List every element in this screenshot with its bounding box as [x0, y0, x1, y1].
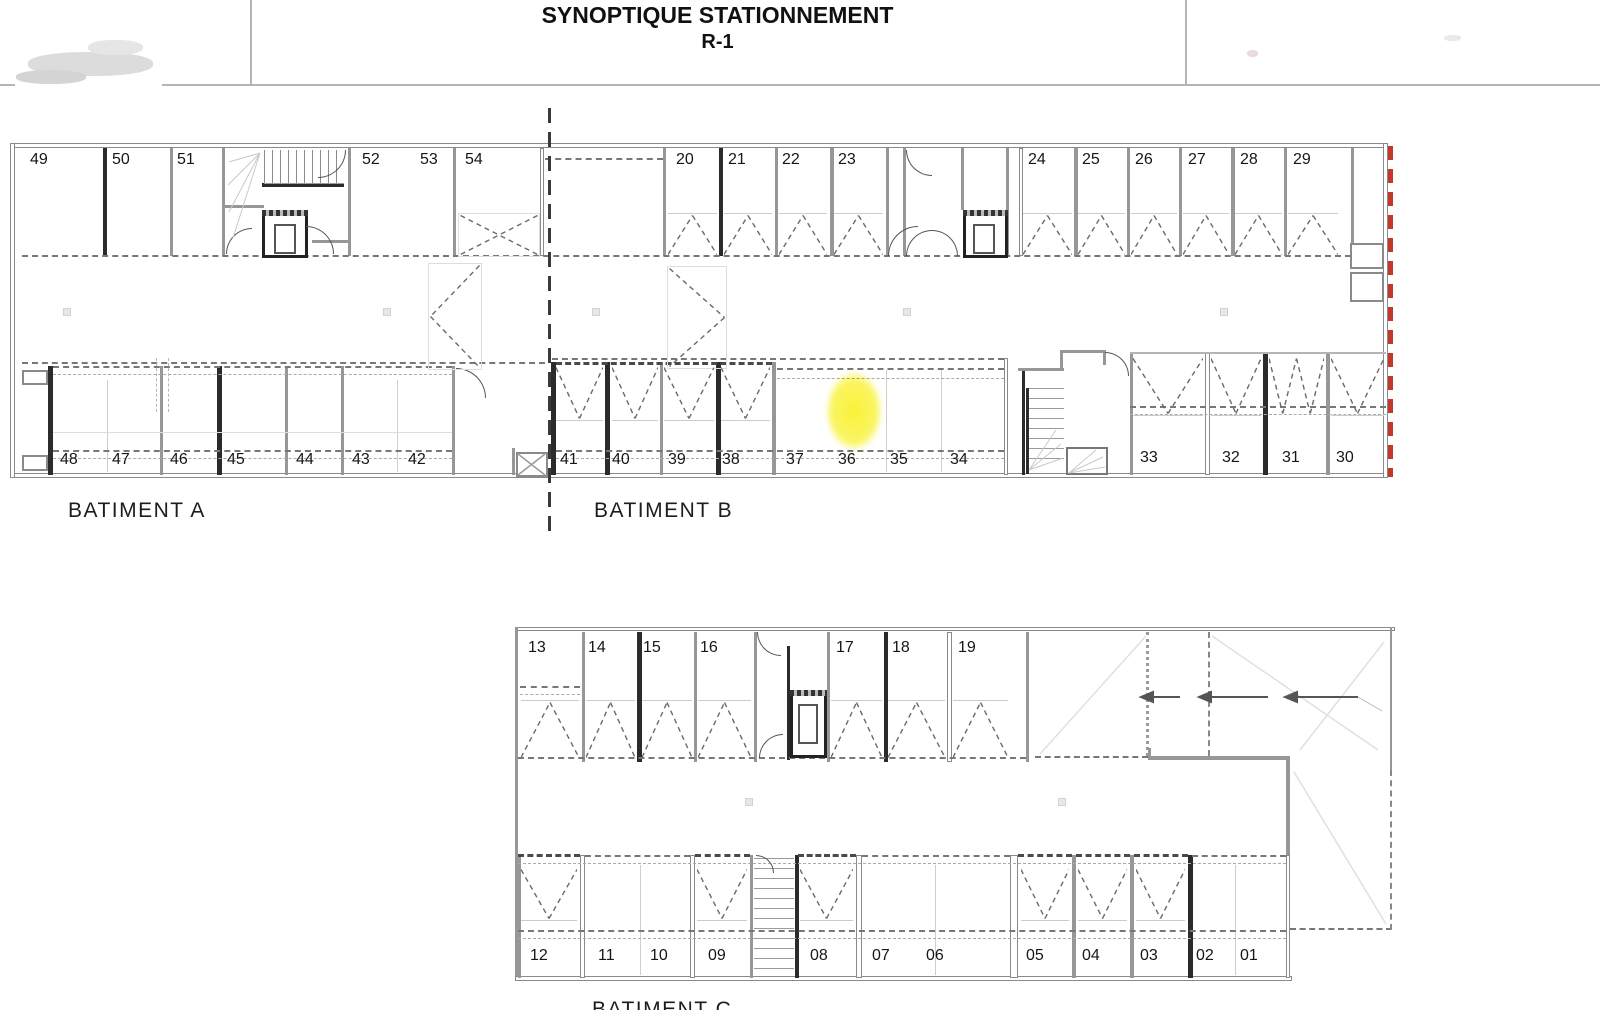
dashed-line: [1035, 756, 1148, 758]
wall: [775, 148, 778, 256]
parking-marking-chevron: [1235, 213, 1282, 256]
plan-geometry: 4950515253542021222324252627282948474645…: [0, 0, 1600, 1010]
parking-space-number: 33: [1140, 450, 1158, 466]
parking-marking-chevron: [521, 868, 577, 921]
parking-space-number: 35: [890, 452, 908, 468]
wall-niche-box: [1350, 243, 1384, 269]
dashed-line: [518, 930, 1286, 932]
wall: [1351, 148, 1354, 256]
parking-space-number: 36: [838, 452, 856, 468]
wall: [694, 632, 697, 762]
parking-space-number: 46: [170, 452, 188, 468]
parking-space-number: 08: [810, 948, 828, 964]
parking-space-number: 05: [1026, 948, 1044, 964]
wall: [1284, 148, 1287, 256]
parking-marking-chevron: [664, 366, 714, 421]
wall: [941, 370, 942, 472]
elevator-door-hatch: [963, 210, 1008, 216]
duct-shaft-box: [516, 452, 548, 477]
parking-space-number: 20: [676, 152, 694, 168]
parking-space-number: 28: [1240, 152, 1258, 168]
parking-marking-chevron: [1288, 213, 1338, 256]
wall: [1060, 350, 1063, 371]
parking-marking-chevron: [1078, 213, 1125, 256]
dashed-line: [1134, 854, 1188, 857]
wall: [1130, 855, 1134, 978]
door-swing-arc: [1105, 352, 1129, 376]
parking-marking-chevron: [1183, 213, 1229, 256]
parking-space-number: 50: [112, 152, 130, 168]
wall-niche-box: [22, 370, 48, 385]
wall: [453, 148, 456, 256]
wall: [1127, 148, 1130, 256]
dashed-line: [520, 694, 580, 695]
parking-space-number: 40: [612, 452, 630, 468]
wall: [10, 143, 15, 478]
wall: [1022, 368, 1025, 475]
parking-space-number: 51: [177, 152, 195, 168]
parking-space-number: 07: [872, 948, 890, 964]
door-swing-arc: [757, 632, 781, 656]
wall: [224, 205, 264, 208]
wall-niche-box: [1350, 272, 1384, 302]
wall: [856, 855, 862, 978]
parking-space-number: 41: [560, 452, 578, 468]
parking-space-number: 43: [352, 452, 370, 468]
parking-space-number: 02: [1196, 948, 1214, 964]
wall: [1060, 350, 1106, 353]
column-marker: [592, 308, 600, 316]
parking-marking-chevron: [1331, 357, 1384, 416]
parking-space-number: 24: [1028, 152, 1046, 168]
wall: [690, 855, 695, 978]
wall: [1004, 358, 1008, 475]
dashed-line: [1076, 854, 1130, 857]
wall: [750, 855, 753, 978]
column-marker: [383, 308, 391, 316]
parking-marking-chevron: [642, 700, 692, 759]
parking-marking-chevron: [586, 700, 635, 759]
parking-marking-chevron: [800, 868, 853, 921]
parking-space-number: 49: [30, 152, 48, 168]
parking-space-number: 13: [528, 640, 546, 656]
highlighted-space-36: [826, 372, 882, 450]
dashed-line: [585, 855, 690, 857]
dashed-line: [53, 432, 452, 433]
parking-space-number: 04: [1082, 948, 1100, 964]
parking-space-number: 42: [408, 452, 426, 468]
dashed-line: [518, 938, 1286, 939]
parking-marking-chevron: [1023, 213, 1072, 256]
parking-space-number: 30: [1336, 450, 1354, 466]
wall: [1072, 855, 1076, 978]
parking-space-number: 22: [782, 152, 800, 168]
parking-space-number: 47: [112, 452, 130, 468]
parking-space-number: 25: [1082, 152, 1100, 168]
dashed-line: [518, 854, 580, 857]
elevator-door-hatch: [262, 210, 308, 216]
parking-space-number: 26: [1135, 152, 1153, 168]
dashed-line: [53, 374, 452, 375]
staircase-treads: [754, 858, 794, 976]
wall: [580, 855, 585, 978]
parking-space-number: 32: [1222, 450, 1240, 466]
dashed-line: [53, 366, 452, 368]
wall: [947, 632, 952, 762]
parking-marking-chevron: [612, 366, 658, 421]
parking-space-number: 54: [465, 152, 483, 168]
dashed-line: [520, 686, 580, 688]
parking-space-number: 19: [958, 640, 976, 656]
wall: [452, 366, 455, 475]
wall: [170, 148, 173, 256]
parking-space-number: 44: [296, 452, 314, 468]
dashed-line: [1146, 632, 1149, 756]
dashed-line: [695, 854, 750, 857]
dashed-line: [777, 378, 1004, 379]
dashed-line: [518, 863, 1286, 864]
door-swing-arc: [226, 228, 252, 254]
wall: [1286, 855, 1290, 978]
parking-space-number: 06: [926, 948, 944, 964]
elevator-car: [973, 224, 995, 254]
parking-marking-chevron: [521, 700, 579, 759]
wall: [795, 855, 799, 978]
parking-space-number: 03: [1140, 948, 1158, 964]
wall: [886, 370, 887, 472]
column-marker: [745, 798, 753, 806]
dashed-line: [1192, 855, 1286, 857]
dashed-line: [1208, 632, 1210, 756]
staircase-treads: [1029, 388, 1064, 462]
parking-space-number: 10: [650, 948, 668, 964]
wall: [512, 448, 515, 475]
dashed-line: [862, 855, 1010, 857]
door-swing-arc: [306, 226, 334, 254]
wall: [582, 632, 585, 762]
elevator-car: [798, 704, 818, 744]
door-swing-arc: [759, 734, 783, 758]
door-swing-arc: [456, 368, 486, 398]
parking-marking-chevron: [458, 213, 540, 257]
dashed-line: [552, 358, 1004, 360]
column-marker: [903, 308, 911, 316]
parking-space-number: 01: [1240, 948, 1258, 964]
parking-marking-chevron: [1269, 357, 1324, 415]
wall: [719, 148, 723, 256]
parking-marking-chevron: [953, 700, 1008, 759]
parking-space-number: 34: [950, 452, 968, 468]
parking-space-number: 29: [1293, 152, 1311, 168]
parking-marking-chevron: [779, 213, 827, 256]
parking-marking-chevron: [1021, 868, 1069, 921]
parking-marking-chevron: [668, 213, 717, 256]
parking-space-number: 39: [668, 452, 686, 468]
dashed-line: [556, 362, 772, 365]
wall: [1018, 368, 1064, 371]
parking-space-number: 38: [722, 452, 740, 468]
wall: [1286, 756, 1290, 857]
parking-marking-chevron: [1131, 213, 1177, 256]
parking-marking-chevron: [1211, 357, 1261, 416]
wall: [515, 976, 1292, 981]
dashed-line: [798, 854, 856, 857]
parking-space-number: 17: [836, 640, 854, 656]
stair-landing-box: [1066, 447, 1108, 475]
red-boundary-line: [1388, 146, 1393, 477]
floor-plan-page: SYNOPTIQUE STATIONNEMENT R-1 BATIMENT A …: [0, 0, 1600, 1010]
dashed-line: [1018, 854, 1072, 857]
dashed-line: [545, 158, 663, 160]
wall: [1235, 865, 1236, 975]
parking-marking-chevron: [724, 213, 772, 256]
wall: [827, 632, 830, 762]
parking-marking-chevron: [888, 700, 945, 759]
wall: [663, 148, 666, 256]
column-marker: [63, 308, 71, 316]
parking-marking-chevron: [1136, 868, 1185, 921]
parking-space-number: 23: [838, 152, 856, 168]
column-marker: [1058, 798, 1066, 806]
wall: [1010, 855, 1018, 978]
wall: [1390, 627, 1392, 770]
parking-space-number: 31: [1282, 450, 1300, 466]
parking-space-number: 16: [700, 640, 718, 656]
wall: [1026, 632, 1029, 762]
door-swing-arc: [932, 230, 958, 256]
parking-marking-chevron: [834, 213, 883, 256]
parking-space-number: 21: [728, 152, 746, 168]
wall: [1130, 352, 1386, 354]
wall: [754, 632, 757, 762]
parking-space-number: 14: [588, 640, 606, 656]
wall: [540, 148, 544, 256]
parking-space-number: 12: [530, 948, 548, 964]
door-swing-arc: [888, 226, 918, 256]
parking-marking-chevron: [1078, 868, 1127, 921]
dashed-line: [1390, 770, 1392, 930]
wall: [1179, 148, 1182, 256]
parking-space-number: 15: [643, 640, 661, 656]
wall: [222, 148, 225, 256]
dashed-line: [1290, 928, 1392, 930]
parking-space-number: 52: [362, 152, 380, 168]
parking-space-number: 27: [1188, 152, 1206, 168]
parking-marking-chevron: [698, 700, 751, 759]
parking-space-number: 37: [786, 452, 804, 468]
parking-space-number: 53: [420, 152, 438, 168]
door-swing-arc: [906, 150, 932, 176]
parking-marking-chevron: [697, 868, 747, 921]
column-marker: [1220, 308, 1228, 316]
wall: [886, 148, 889, 256]
elevator-car: [274, 224, 296, 254]
wall: [515, 627, 1395, 631]
parking-marking-chevron: [721, 366, 770, 421]
parking-marking-chevron: [667, 266, 727, 369]
parking-marking-chevron: [428, 263, 482, 370]
wall: [1188, 855, 1193, 978]
parking-space-number: 48: [60, 452, 78, 468]
wall: [640, 865, 641, 975]
wall-niche-box: [22, 455, 48, 471]
parking-marking-chevron: [1133, 357, 1203, 416]
dashed-line: [777, 368, 1004, 370]
parking-space-number: 09: [708, 948, 726, 964]
parking-space-number: 11: [598, 948, 615, 964]
wall: [1148, 756, 1290, 760]
parking-marking-chevron: [831, 700, 882, 759]
parking-space-number: 45: [227, 452, 245, 468]
wall: [961, 148, 964, 210]
wall: [103, 148, 107, 256]
dashed-line: [156, 358, 157, 412]
dashed-line: [168, 358, 169, 412]
elevator-door-hatch: [790, 690, 827, 696]
building-separator-line: [548, 108, 551, 532]
parking-space-number: 18: [892, 640, 910, 656]
parking-marking-chevron: [556, 366, 603, 421]
